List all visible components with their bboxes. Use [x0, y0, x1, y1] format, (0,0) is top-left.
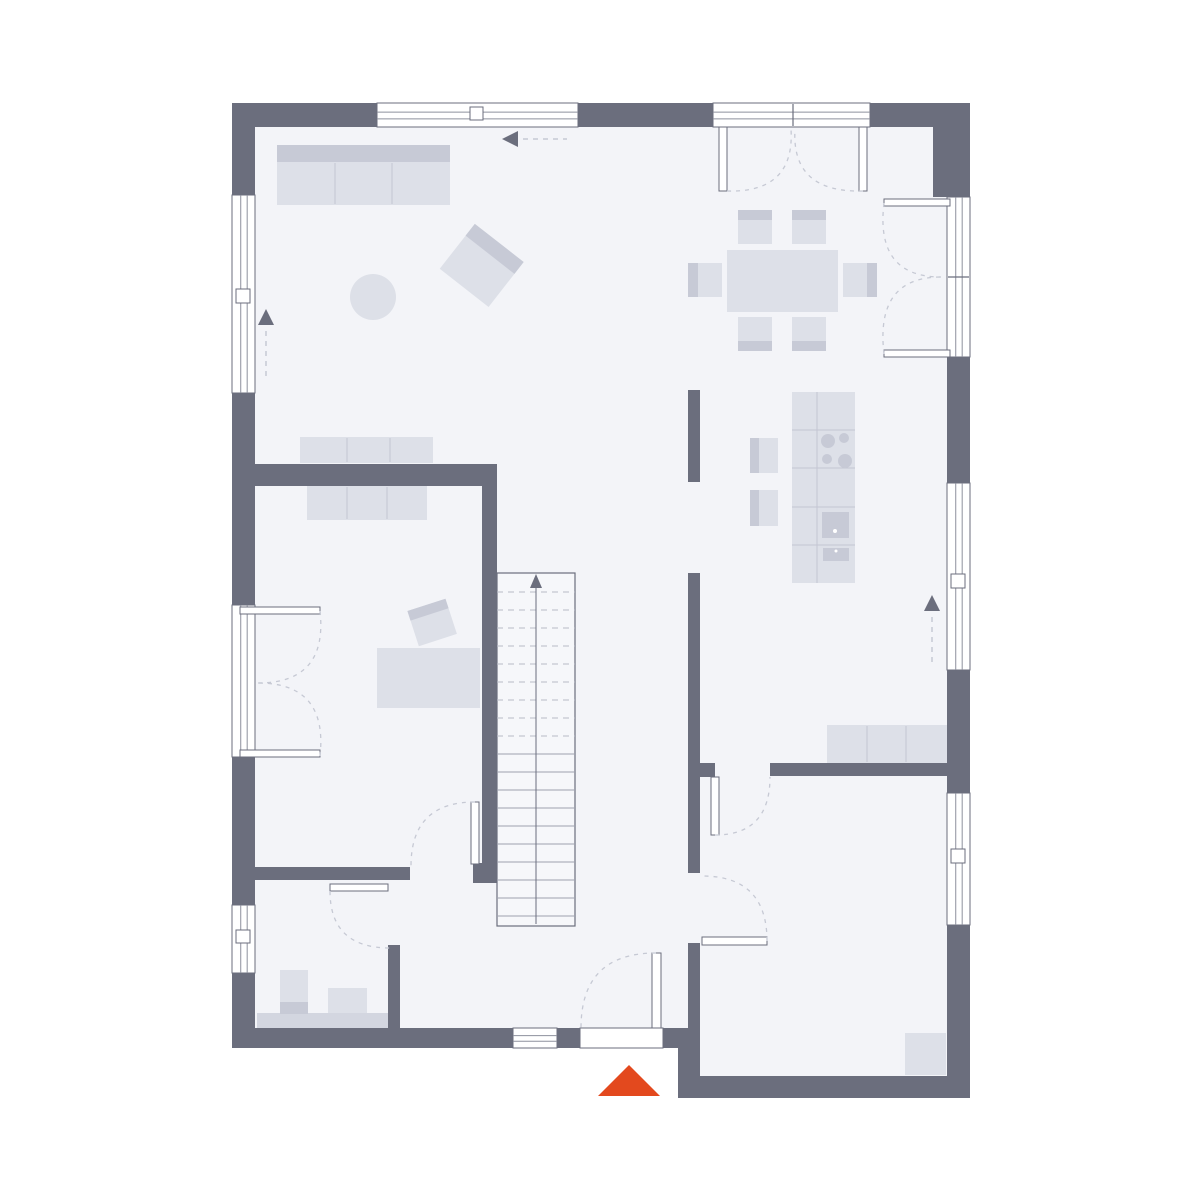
french-door-left — [232, 605, 255, 757]
wall-office-top — [255, 464, 497, 486]
french-door-bottom-leaf — [240, 750, 320, 757]
patio-door-bottom-leaf — [884, 350, 950, 357]
wall-utility-room-left-lower — [678, 1048, 700, 1076]
wall-kitchen-partition-upper — [688, 390, 700, 482]
terrace-door-top — [713, 103, 870, 127]
sofa — [277, 145, 450, 205]
utility-room-door-leaf — [702, 937, 767, 945]
hall-door-leaf — [471, 802, 479, 864]
kitchen-island — [792, 392, 855, 583]
dining-chair-top-left — [738, 210, 772, 244]
window-bottom-small — [513, 1028, 557, 1048]
window-sill-marker — [951, 849, 965, 863]
dining-chair-bottom-left — [738, 317, 772, 351]
window-left-wc — [232, 905, 255, 973]
wc-toilet — [280, 970, 308, 1014]
utility-corner-unit — [905, 1033, 946, 1075]
entry-door-opening — [580, 1028, 663, 1048]
floor-plan-canvas — [0, 0, 1200, 1200]
window-sill-marker — [236, 289, 250, 303]
wc-countertop — [257, 1013, 388, 1028]
entrance-arrow — [598, 1065, 660, 1096]
wc-door-leaf — [330, 884, 388, 891]
french-door-top-leaf — [240, 607, 320, 614]
patio-door-top-leaf — [884, 199, 950, 206]
coffee-table — [350, 274, 396, 320]
terrace-door-right-leaf — [859, 127, 867, 191]
office-desk — [377, 648, 480, 708]
wall-bottom-utility-room — [678, 1076, 970, 1098]
wall-hall-partition — [688, 573, 700, 873]
patio-door-right — [947, 197, 970, 357]
wall-corner-pier-top-right — [933, 103, 970, 197]
wall-room-divider-horizontal — [770, 763, 947, 776]
wall-wc-top — [255, 867, 410, 880]
wall-hall-partition-jamb — [700, 763, 715, 777]
window-left-living — [232, 195, 255, 393]
floor-plan-page — [0, 0, 1200, 1200]
window-sill-marker — [951, 574, 965, 588]
dining-chair-right — [843, 263, 877, 297]
dining-table — [727, 250, 838, 312]
staircase — [497, 573, 575, 926]
window-top — [377, 103, 578, 127]
wall-stairs-foot — [473, 863, 497, 883]
office-wardrobe — [307, 486, 427, 520]
entrance-arrow-icon — [598, 1065, 660, 1096]
wall-wc-right — [388, 945, 400, 1028]
kitchen-room-door-leaf — [711, 777, 719, 835]
dining-chair-top-right — [792, 210, 826, 244]
window-right-kitchen — [947, 483, 970, 670]
entry-door-leaf — [652, 953, 661, 1028]
wall-utility-room-left — [688, 943, 700, 1048]
sideboard-living — [300, 437, 433, 463]
kitchen-stool-1 — [750, 438, 778, 473]
window-right-utility — [947, 793, 970, 925]
sideboard-utility — [827, 725, 947, 763]
dining-chair-bottom-right — [792, 317, 826, 351]
window-sill-marker — [236, 930, 250, 943]
terrace-door-left-leaf — [719, 127, 727, 191]
dining-chair-left — [688, 263, 722, 297]
wc-sink — [328, 988, 367, 1013]
window-sill-marker — [470, 107, 483, 120]
kitchen-stool-2 — [750, 490, 778, 526]
wall-stairs — [482, 486, 497, 863]
